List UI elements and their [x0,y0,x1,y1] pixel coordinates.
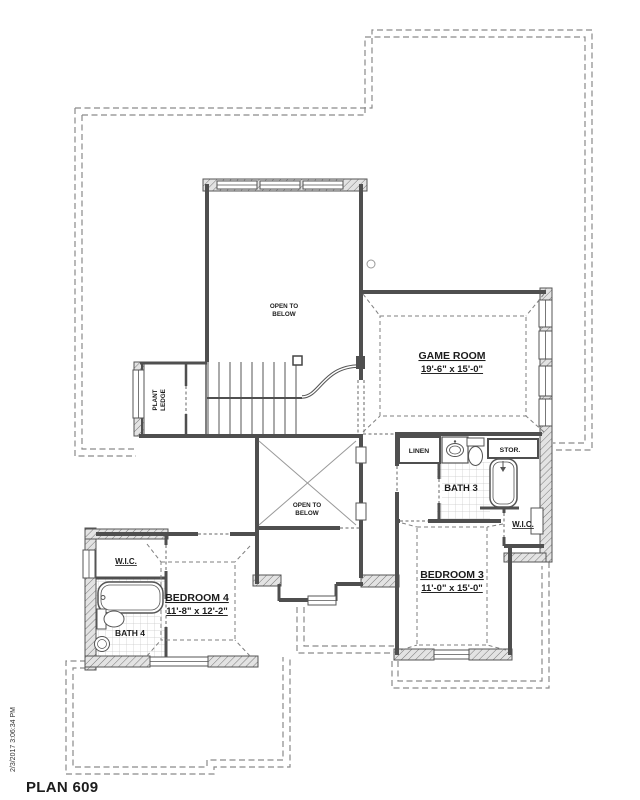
shaft-opening [356,503,366,520]
plant-ledge-line1: PLANT [152,389,159,410]
window [133,370,144,418]
plan-title: PLAN 609 [26,779,98,796]
bedroom3-label: BEDROOM 3 [420,569,484,581]
newel-post [293,356,302,365]
open-below-upper-line2: BELOW [272,311,295,318]
bath3-tub [490,459,517,507]
shaft-opening [356,447,366,463]
window [539,331,552,359]
tile-floors [96,462,490,662]
game-room-label: GAME ROOM [418,350,485,362]
window [308,596,336,605]
bath4-sink [95,637,110,652]
ceiling-fixture [367,260,375,268]
print-timestamp: 2/3/2017 3:06:34 PM [10,707,17,772]
window [303,181,343,189]
window [539,366,552,396]
plant-ledge-line2: LEDGE [160,389,167,411]
curved-rail [302,366,360,397]
bath4-label: BATH 4 [115,628,145,638]
bedroom3-dims: 11'-0" x 15'-0" [421,583,483,594]
open-below-shaft-line1: OPEN TO [293,502,321,509]
window [217,181,257,189]
wic-left-label: W.I.C. [115,557,137,566]
bath4-tub [98,582,163,613]
wic-right-label: W.I.C. [512,520,534,529]
window [434,650,469,659]
bedroom4-label: BEDROOM 4 [165,592,229,604]
window [260,181,300,189]
linen-label: LINEN [409,448,429,455]
floor-plan-sheet: GAME ROOM 19'-6" x 15'-0" BEDROOM 3 11'-… [0,0,640,800]
window [83,550,95,578]
open-below-upper-line1: OPEN TO [270,303,298,310]
open-below-shaft-line2: BELOW [295,510,318,517]
bath3-toilet [467,438,484,466]
bath3-label: BATH 3 [444,483,478,494]
bedroom4-dims: 11'-8" x 12'-2" [166,606,228,617]
window [539,399,552,426]
bath3-vanity-sink [442,437,468,463]
staircase [207,356,365,434]
storage-label: STOR. [500,447,521,454]
game-room-dims: 19'-6" x 15'-0" [421,364,483,375]
window [150,657,208,666]
bath4-toilet [97,609,124,629]
rail-post [356,356,365,369]
window [539,300,552,327]
floor-plan-drawing: GAME ROOM 19'-6" x 15'-0" BEDROOM 3 11'-… [0,0,640,800]
